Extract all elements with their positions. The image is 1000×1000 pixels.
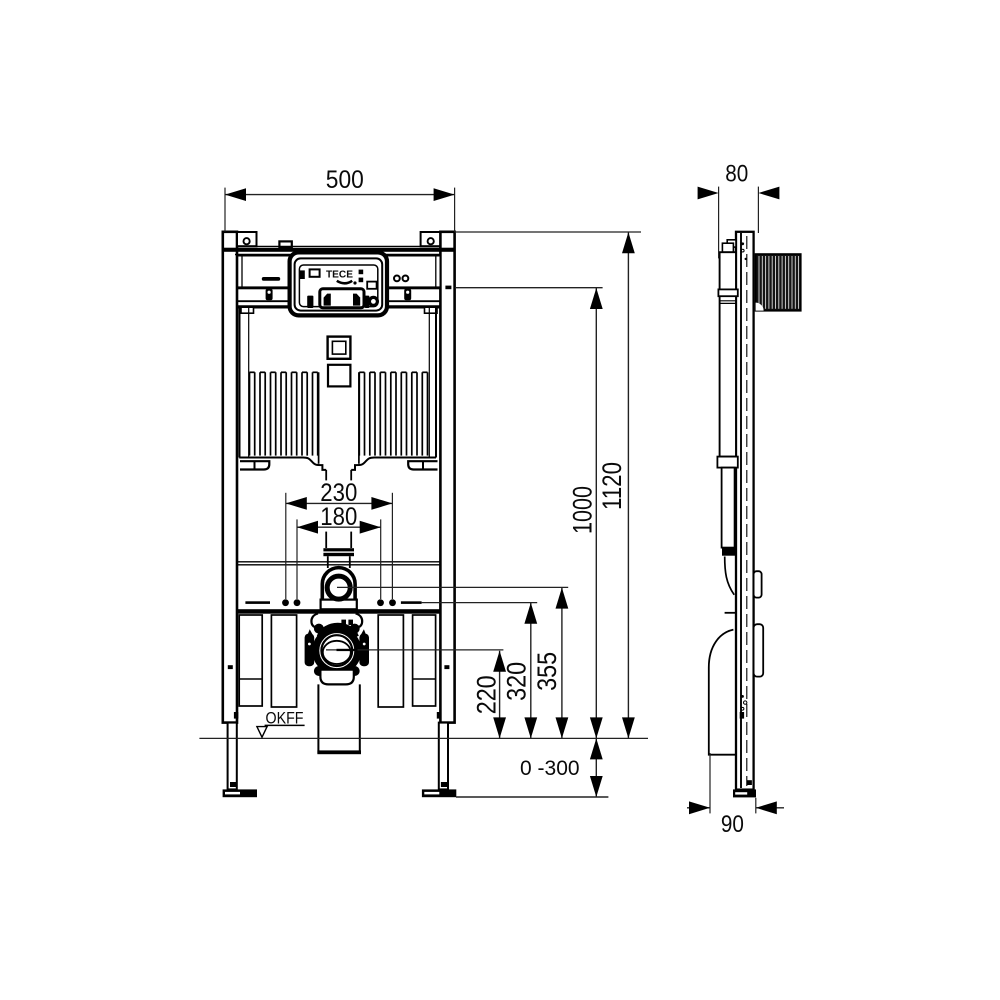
svg-text:90: 90 xyxy=(721,811,744,838)
svg-text:355: 355 xyxy=(532,652,562,691)
svg-text:320: 320 xyxy=(502,662,532,701)
svg-text:TECE: TECE xyxy=(326,268,353,280)
svg-text:180: 180 xyxy=(320,503,357,531)
svg-text:500: 500 xyxy=(326,166,364,194)
svg-text:1000: 1000 xyxy=(567,486,597,534)
svg-text:220: 220 xyxy=(471,675,501,714)
svg-text:1120: 1120 xyxy=(597,462,627,510)
svg-text:80: 80 xyxy=(725,161,748,188)
svg-text:0 -300: 0 -300 xyxy=(520,757,580,780)
